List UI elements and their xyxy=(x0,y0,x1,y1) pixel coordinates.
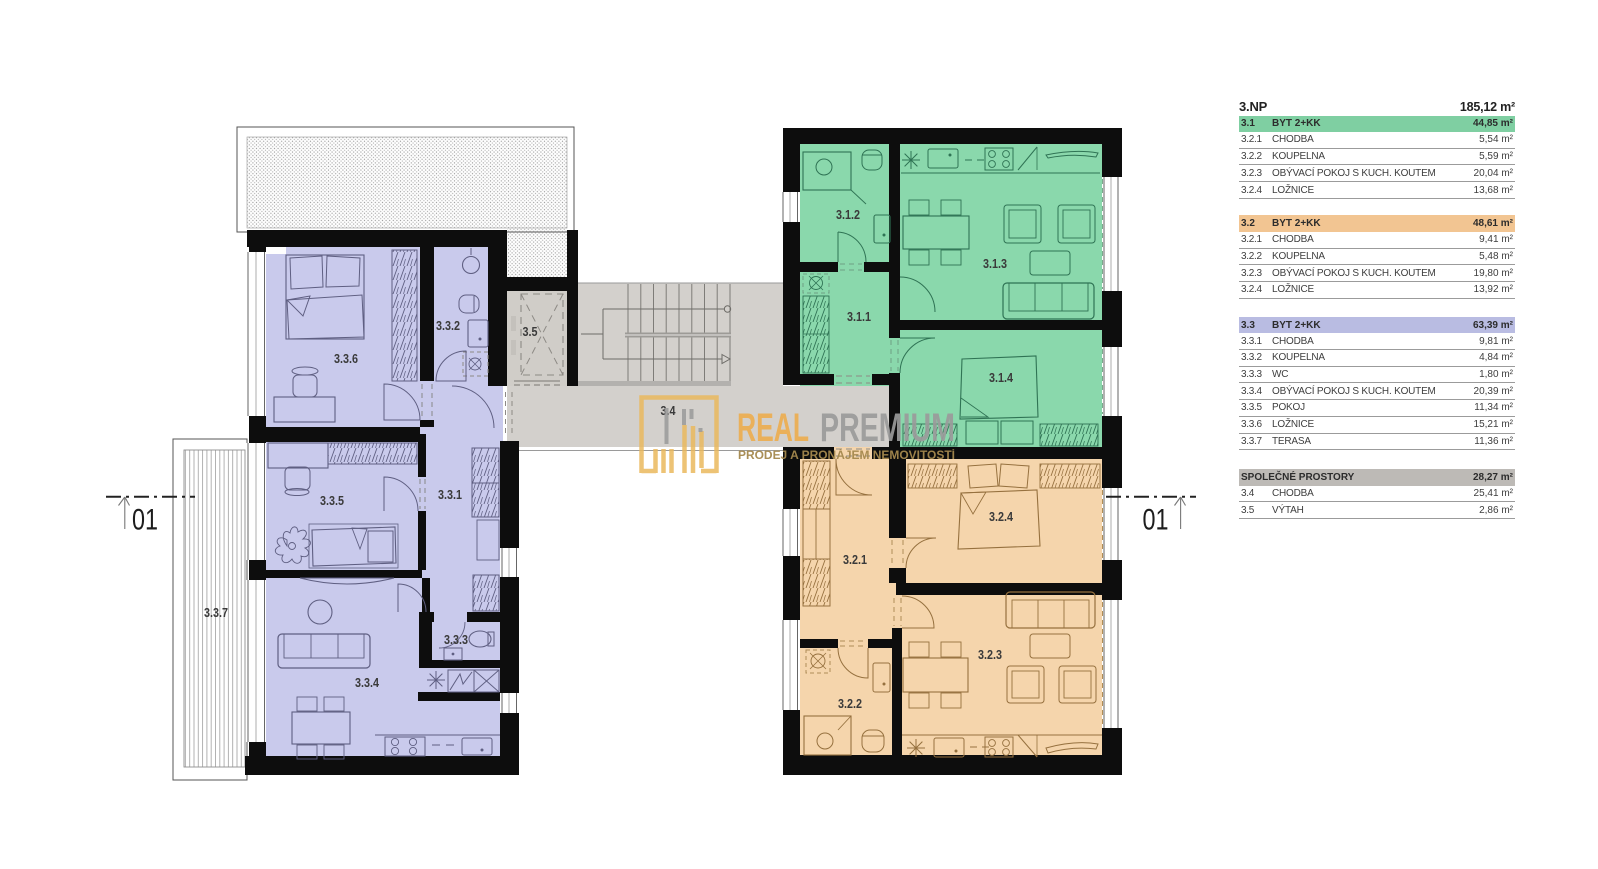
svg-text:REAL: REAL xyxy=(737,406,809,450)
svg-text:3.1.4: 3.1.4 xyxy=(989,371,1013,385)
svg-text:3.3.4: 3.3.4 xyxy=(355,676,379,690)
svg-text:3.2.2: 3.2.2 xyxy=(838,697,862,711)
svg-text:3.2.1: 3.2.1 xyxy=(843,553,867,567)
svg-text:01: 01 xyxy=(132,504,158,537)
svg-text:3.5: 3.5 xyxy=(523,325,538,339)
svg-text:3.3.5: 3.3.5 xyxy=(320,494,344,508)
svg-text:PRODEJ A PRONÁJEM NEMOVITOSTÍ: PRODEJ A PRONÁJEM NEMOVITOSTÍ xyxy=(738,449,956,462)
svg-text:3.2.3: 3.2.3 xyxy=(978,648,1002,662)
svg-text:01: 01 xyxy=(1143,504,1169,537)
svg-text:3.3.1: 3.3.1 xyxy=(438,488,462,502)
svg-text:3.1.2: 3.1.2 xyxy=(836,208,860,222)
svg-text:3.3.7: 3.3.7 xyxy=(204,606,228,620)
svg-text:3.2.4: 3.2.4 xyxy=(989,510,1013,524)
svg-text:PREMIUM: PREMIUM xyxy=(820,406,955,450)
svg-text:3.1.1: 3.1.1 xyxy=(847,310,871,324)
svg-text:3.3.3: 3.3.3 xyxy=(444,633,468,647)
svg-text:3.3.2: 3.3.2 xyxy=(436,319,460,333)
svg-text:3.3.6: 3.3.6 xyxy=(334,352,358,366)
svg-text:3.1.3: 3.1.3 xyxy=(983,257,1007,271)
